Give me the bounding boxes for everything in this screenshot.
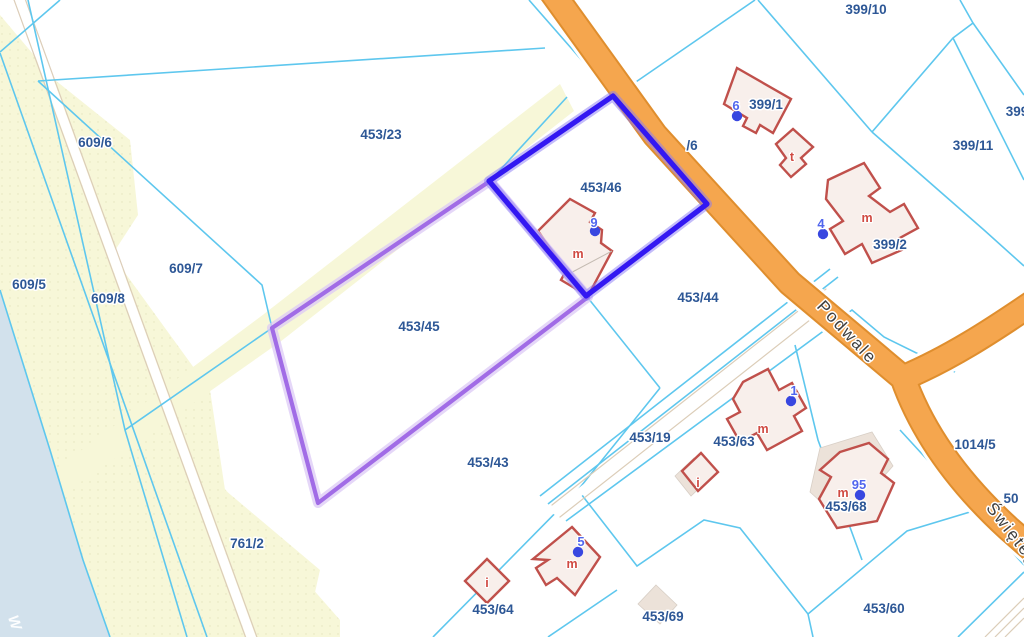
parcel-label: /6 <box>686 138 698 153</box>
parcel-label: 399/10 <box>845 2 886 17</box>
parcel-label: 1014/5 <box>954 437 996 452</box>
address-marker-number[interactable]: 4 <box>817 216 825 231</box>
parcel-label: 453/23 <box>360 127 402 142</box>
parcel-label: 609/8 <box>91 291 125 306</box>
parcel-label: 453/68 <box>825 499 867 514</box>
parcel-label: 50 <box>1003 491 1018 506</box>
building-function-label: m <box>566 557 577 571</box>
address-marker-number[interactable]: 5 <box>577 534 584 549</box>
building-function-label: m <box>837 486 848 500</box>
parcel-label: 453/43 <box>467 455 509 470</box>
building-function-label: m <box>757 422 768 436</box>
parcel-label: 453/63 <box>713 434 755 449</box>
map-viewport[interactable]: 609/6609/5609/7609/8453/23453/46453/4445… <box>0 0 1024 637</box>
parcel-label: 453/69 <box>642 609 683 624</box>
building-function-label: m <box>861 211 872 225</box>
address-marker-number[interactable]: 6 <box>732 98 739 113</box>
parcel-label: 453/44 <box>677 290 719 305</box>
address-marker-number[interactable]: 9 <box>590 215 597 230</box>
parcel-label: 453/19 <box>629 430 670 445</box>
address-marker-number[interactable]: 95 <box>852 477 866 492</box>
building-function-label: m <box>572 247 583 261</box>
building-function-label: i <box>696 476 699 490</box>
parcel-label: 609/6 <box>78 135 112 150</box>
parcel-label: 453/64 <box>472 602 514 617</box>
parcel-label: 399/11 <box>953 138 994 153</box>
parcel-label: 761/2 <box>230 536 264 551</box>
parcel-label: 399/1 <box>749 97 783 112</box>
cadastral-map[interactable]: 609/6609/5609/7609/8453/23453/46453/4445… <box>0 0 1024 637</box>
parcel-label: 399 <box>1006 104 1024 119</box>
parcel-label: 609/7 <box>169 261 203 276</box>
address-marker-number[interactable]: 1 <box>790 383 797 398</box>
parcel-label: 453/60 <box>863 601 904 616</box>
parcel-label: 453/45 <box>398 319 440 334</box>
parcel-label: 453/46 <box>580 180 622 195</box>
parcel-label: 399/2 <box>873 237 907 252</box>
building-function-label: i <box>485 576 488 590</box>
parcel-label: 609/5 <box>12 277 46 292</box>
